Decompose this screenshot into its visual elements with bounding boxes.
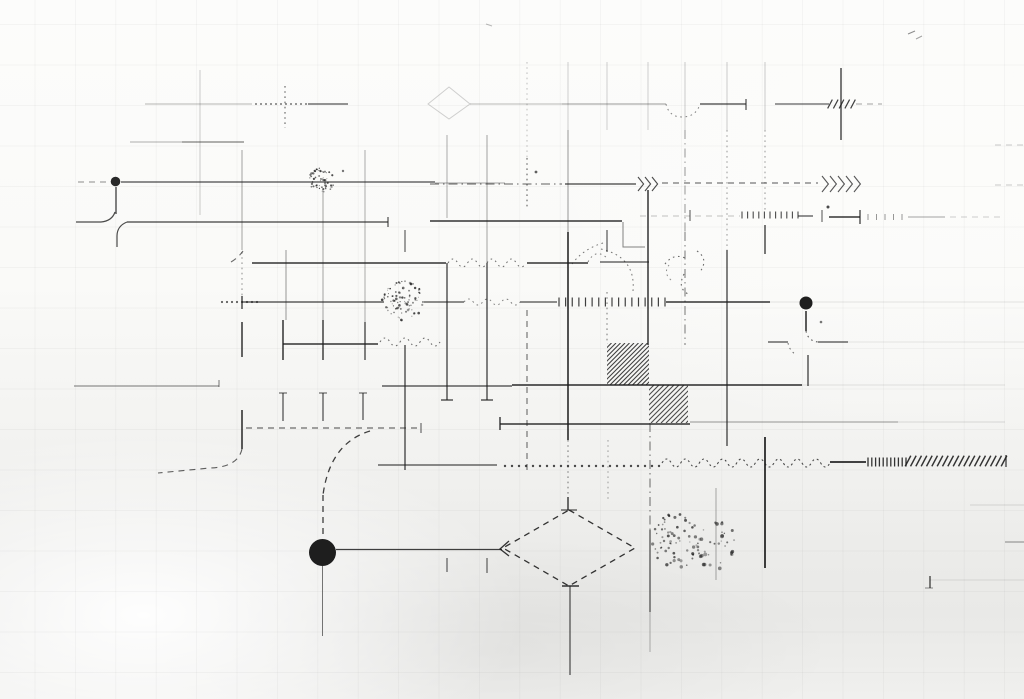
wavy-line: [464, 299, 520, 305]
pen-stroke: [666, 104, 700, 117]
dashed-diamond: [503, 510, 635, 586]
filled-circle: [309, 539, 336, 566]
pen-stroke: [500, 541, 509, 556]
wavy-line: [380, 338, 440, 346]
pen-stroke: [916, 36, 922, 39]
tick-band: [742, 212, 798, 219]
filled-dot: [111, 177, 121, 187]
tick-band: [868, 214, 902, 220]
chevron-arrows: [822, 176, 860, 192]
tick-band: [905, 456, 1007, 467]
filled-dot: [827, 206, 830, 209]
artwork-photo: [0, 0, 1024, 699]
pen-stroke: [601, 249, 633, 291]
pen-stroke: [588, 254, 608, 262]
pen-stroke: [323, 431, 370, 495]
pen-stroke: [101, 212, 115, 222]
filled-dot: [820, 321, 823, 324]
filled-dot: [800, 297, 813, 310]
pen-stroke: [665, 256, 687, 264]
pen-stroke: [697, 251, 704, 272]
tick-band: [868, 458, 906, 467]
graph-paper-grid: [0, 0, 1024, 699]
stipple-cluster: [381, 280, 424, 321]
hatched-square: [565, 343, 688, 385]
stipple-cluster: [651, 513, 699, 568]
filled-dot: [342, 170, 344, 172]
pen-stroke: [623, 222, 645, 247]
pen-stroke: [117, 222, 127, 247]
pen-stroke: [428, 87, 470, 119]
tick-band: [559, 298, 665, 307]
hatched-square: [611, 385, 724, 423]
pen-stroke: [158, 449, 242, 473]
abstract-line-drawing: [0, 0, 1024, 699]
pen-stroke: [806, 331, 818, 342]
filled-dot: [535, 171, 538, 174]
stipple-cluster: [309, 168, 334, 193]
pen-stroke: [788, 343, 797, 355]
pen-stroke: [572, 243, 603, 264]
pen-stroke: [908, 31, 915, 34]
dotted-line: [255, 103, 307, 105]
stipple-cluster: [695, 521, 735, 570]
wavy-line: [662, 459, 830, 467]
